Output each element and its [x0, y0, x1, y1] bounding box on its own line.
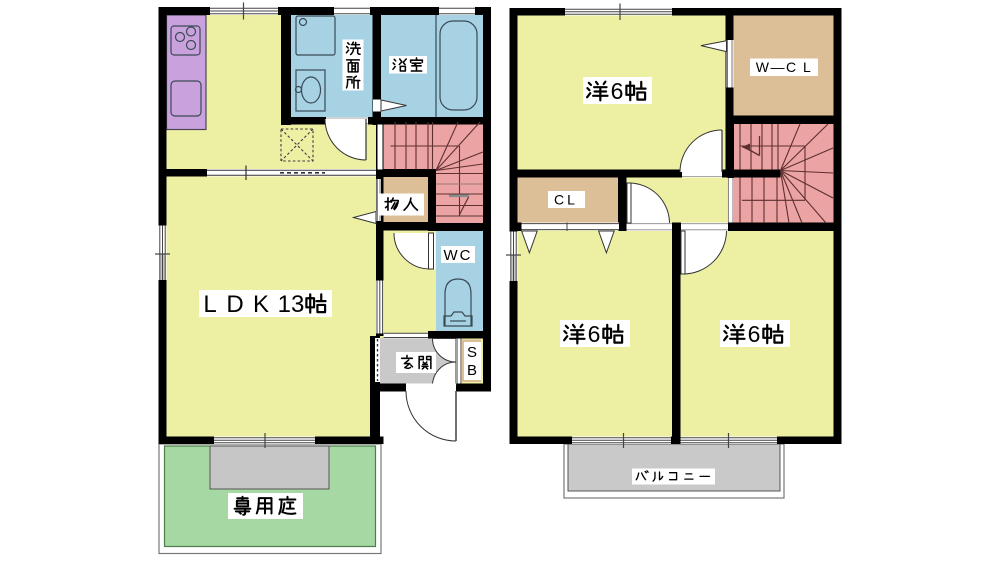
svg-text:13: 13 — [278, 291, 305, 318]
svg-text:B: B — [467, 362, 477, 379]
svg-text:CL: CL — [554, 192, 578, 208]
svg-text:S: S — [467, 344, 477, 361]
svg-text:6: 6 — [748, 321, 761, 347]
svg-text:D: D — [226, 291, 243, 318]
svg-text:6: 6 — [611, 78, 624, 104]
svg-text:W—C L: W—C L — [756, 59, 813, 75]
svg-text:6: 6 — [588, 321, 601, 347]
svg-text:WC: WC — [444, 247, 473, 264]
svg-text:L: L — [203, 291, 216, 318]
svg-text:K: K — [253, 291, 269, 318]
